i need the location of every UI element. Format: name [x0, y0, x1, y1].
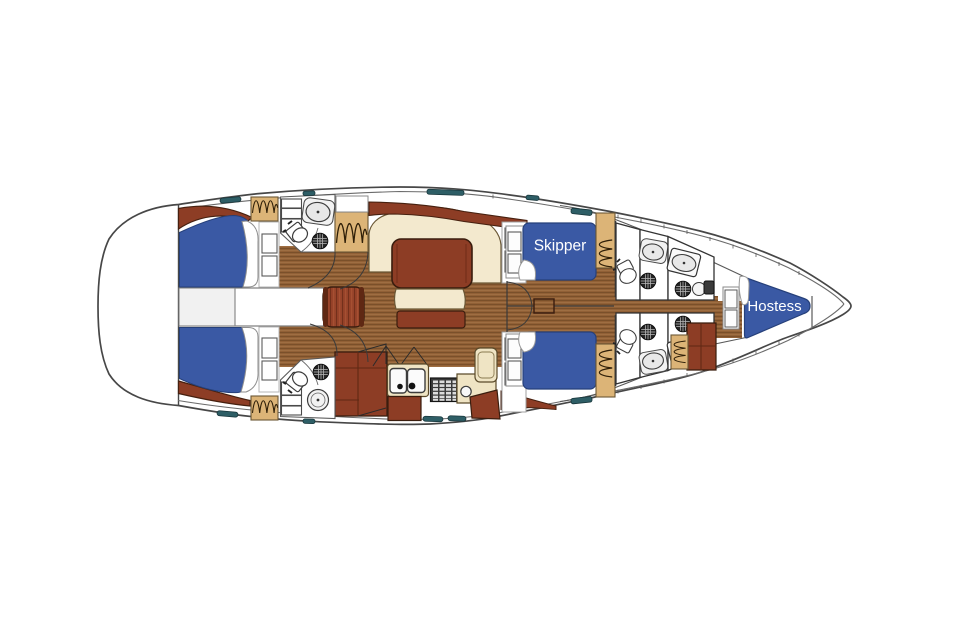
svg-text:Hostess: Hostess: [747, 298, 801, 315]
svg-text:Skipper: Skipper: [534, 238, 587, 255]
